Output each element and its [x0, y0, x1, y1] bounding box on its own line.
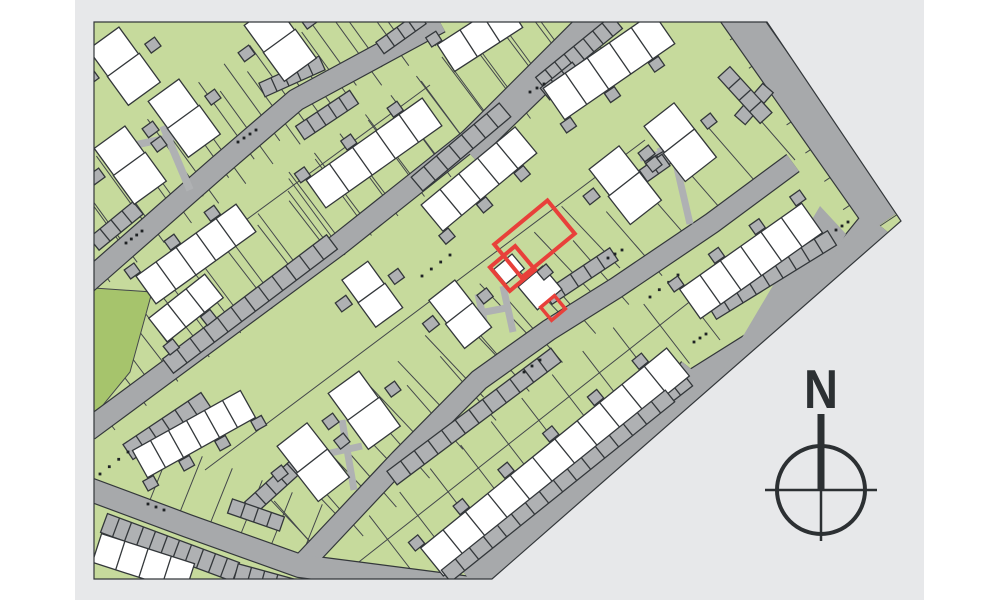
svg-text:N: N: [804, 358, 838, 420]
